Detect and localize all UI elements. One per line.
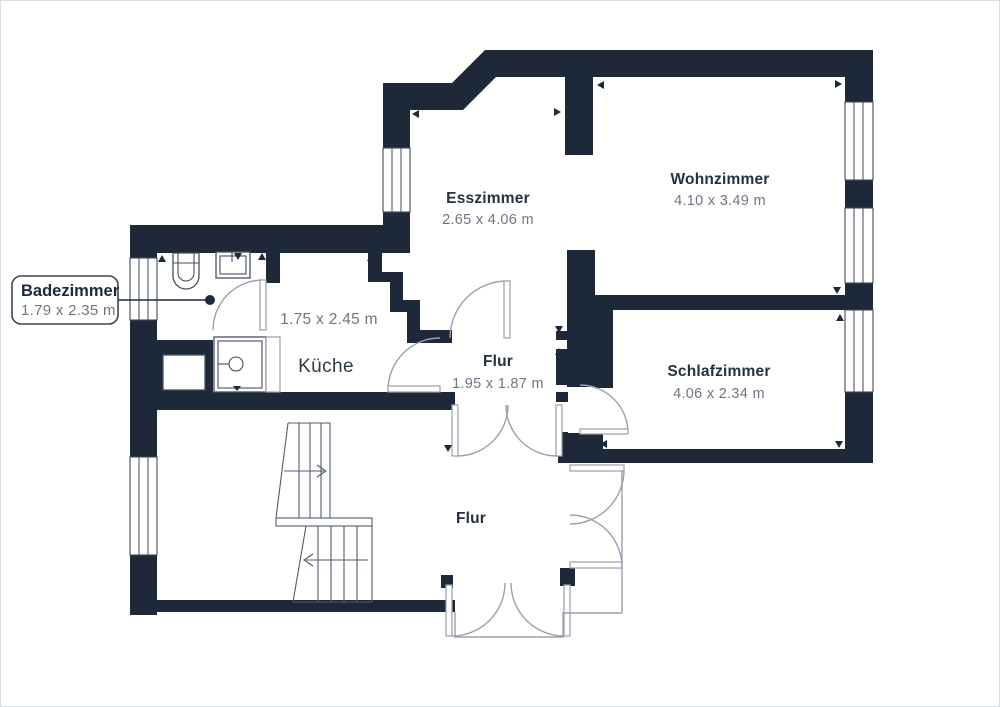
door-leaf	[570, 465, 624, 471]
window-frame	[130, 457, 157, 555]
door-leaf	[580, 429, 628, 434]
room-label-wohnzimmer: Wohnzimmer	[670, 171, 769, 188]
door-leaf	[570, 562, 622, 568]
room-dims-wohnzimmer: 4.10 x 3.49 m	[674, 193, 766, 209]
room-dims-flur: 1.95 x 1.87 m	[452, 376, 544, 392]
shower	[214, 337, 266, 392]
toilet-bowl	[173, 253, 199, 289]
sink	[216, 252, 250, 278]
callout-leader-dot	[205, 295, 215, 305]
window-wohnzimmer-2	[845, 208, 873, 283]
window-frame	[845, 208, 873, 283]
floor-plan-canvas: Esszimmer 2.65 x 4.06 m Wohnzimmer 4.10 …	[0, 0, 1000, 707]
room-label-esszimmer: Esszimmer	[446, 190, 530, 207]
window-frame	[845, 310, 873, 392]
door-leaf	[260, 280, 266, 330]
door-leaf	[388, 386, 440, 392]
bath-partition	[266, 337, 280, 392]
room-dims-esszimmer: 2.65 x 4.06 m	[442, 212, 534, 228]
window-badezimmer	[130, 258, 157, 320]
callout-dims: 1.79 x 2.35 m	[21, 302, 116, 319]
window-frame	[383, 148, 410, 212]
window-esszimmer	[383, 148, 410, 212]
room-label-flur: Flur	[483, 353, 513, 370]
door-leaf-right	[556, 405, 562, 456]
room-label-schlafzimmer: Schlafzimmer	[667, 363, 770, 380]
door-leaf-right	[564, 585, 570, 636]
room-label-kueche: Küche	[298, 356, 354, 377]
floor-plan: Esszimmer 2.65 x 4.06 m Wohnzimmer 4.10 …	[0, 0, 1000, 707]
room-dims-kueche: 1.75 x 2.45 m	[280, 311, 378, 328]
window-stairs	[130, 457, 157, 555]
door-leaf-left	[446, 585, 452, 636]
toilet	[173, 253, 199, 289]
door-leaf	[504, 281, 510, 338]
door-leaf-left	[452, 405, 458, 456]
room-dims-schlafzimmer: 4.06 x 2.34 m	[673, 386, 765, 402]
callout-title: Badezimmer	[21, 282, 120, 300]
room-label-flur-unten: Flur	[456, 510, 486, 527]
window-frame	[130, 258, 157, 320]
shaft	[163, 355, 205, 390]
window-frame	[845, 102, 873, 180]
window-wohnzimmer-1	[845, 102, 873, 180]
window-schlafzimmer	[845, 310, 873, 392]
